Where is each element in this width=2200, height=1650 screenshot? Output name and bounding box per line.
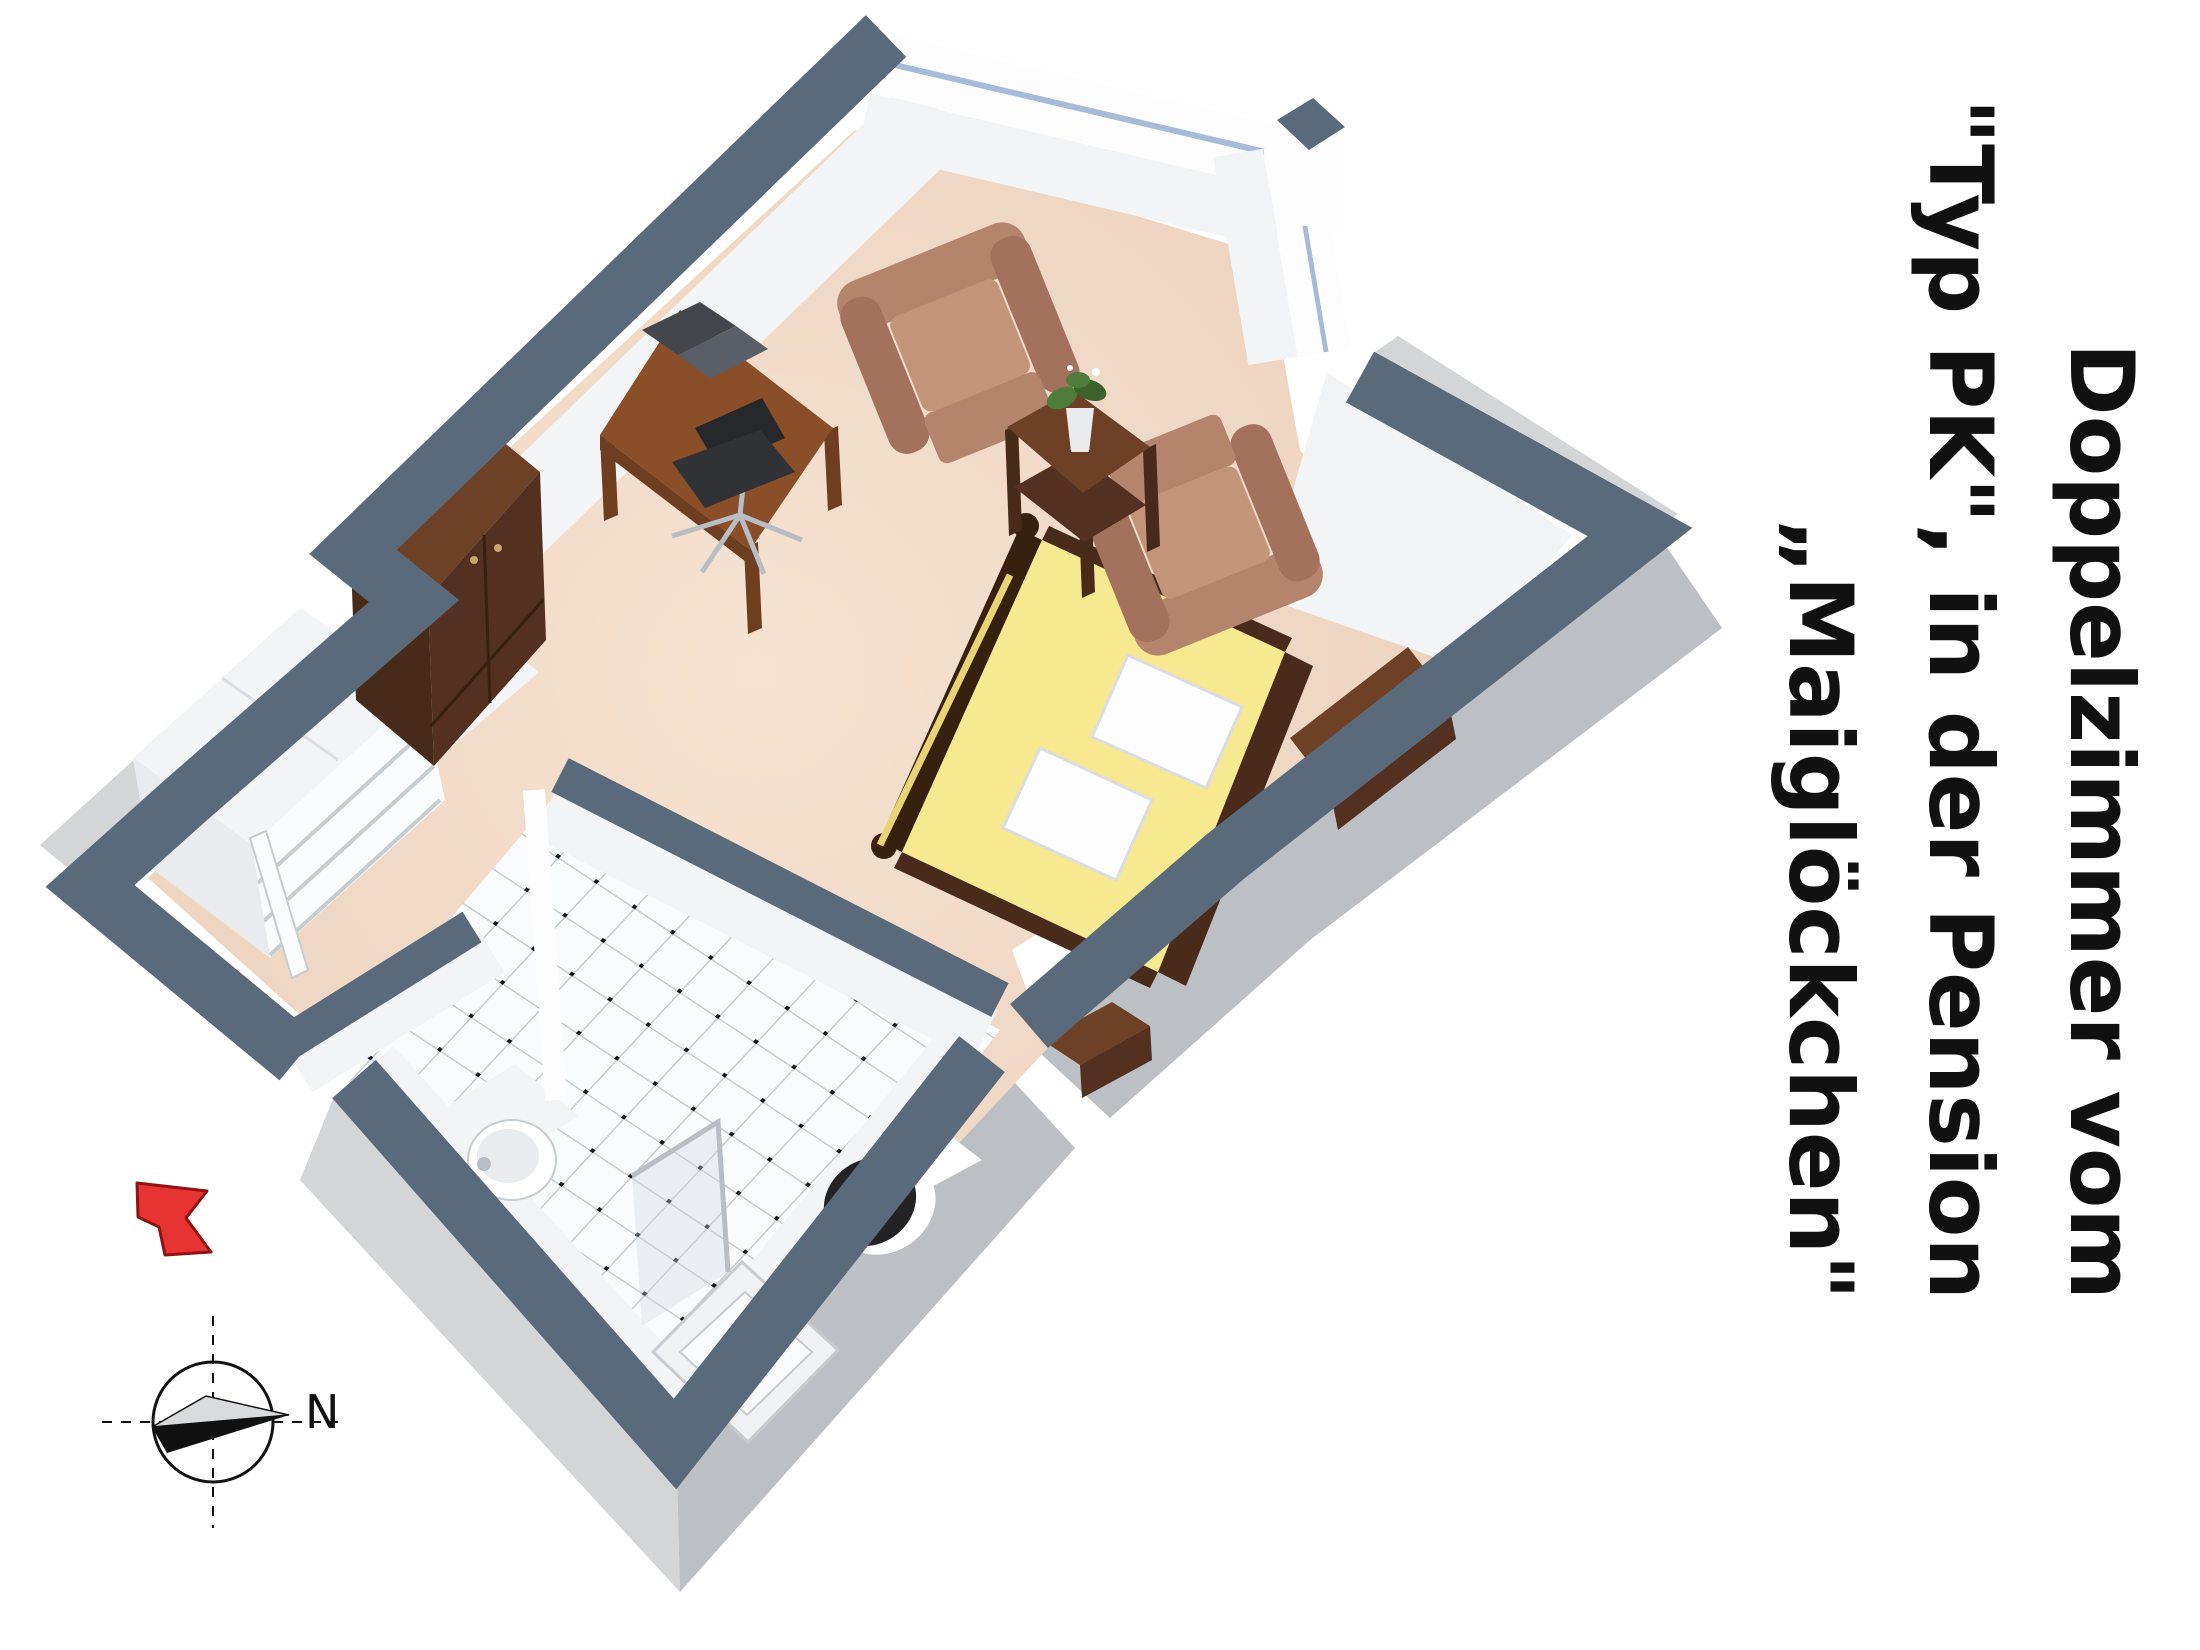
washbasin-bowl-inner — [477, 1129, 539, 1183]
plant-flower — [1067, 365, 1073, 371]
red-entry-arrow-icon — [137, 1183, 211, 1255]
plant-leaf — [1066, 372, 1090, 388]
plant-flower — [1092, 368, 1100, 376]
title-line-2: "Typ PK", in der Pension — [1890, 40, 2031, 1300]
compass-icon: N — [102, 1316, 339, 1528]
north-label: N — [305, 1385, 339, 1439]
floor-plan-page: N Doppelzimmer vom "Typ PK", in der Pens… — [0, 0, 2200, 1650]
faucet — [477, 1157, 491, 1171]
window2-inner-face — [1238, 153, 1273, 361]
title-line-3: „Maiglöckchen" — [1749, 40, 1890, 1300]
title-line-1: Doppelzimmer vom — [2030, 40, 2171, 1300]
wardrobe-knob — [494, 544, 502, 552]
wardrobe-knob — [470, 556, 478, 564]
page-title: Doppelzimmer vom "Typ PK", in der Pensio… — [1710, 40, 2200, 1300]
